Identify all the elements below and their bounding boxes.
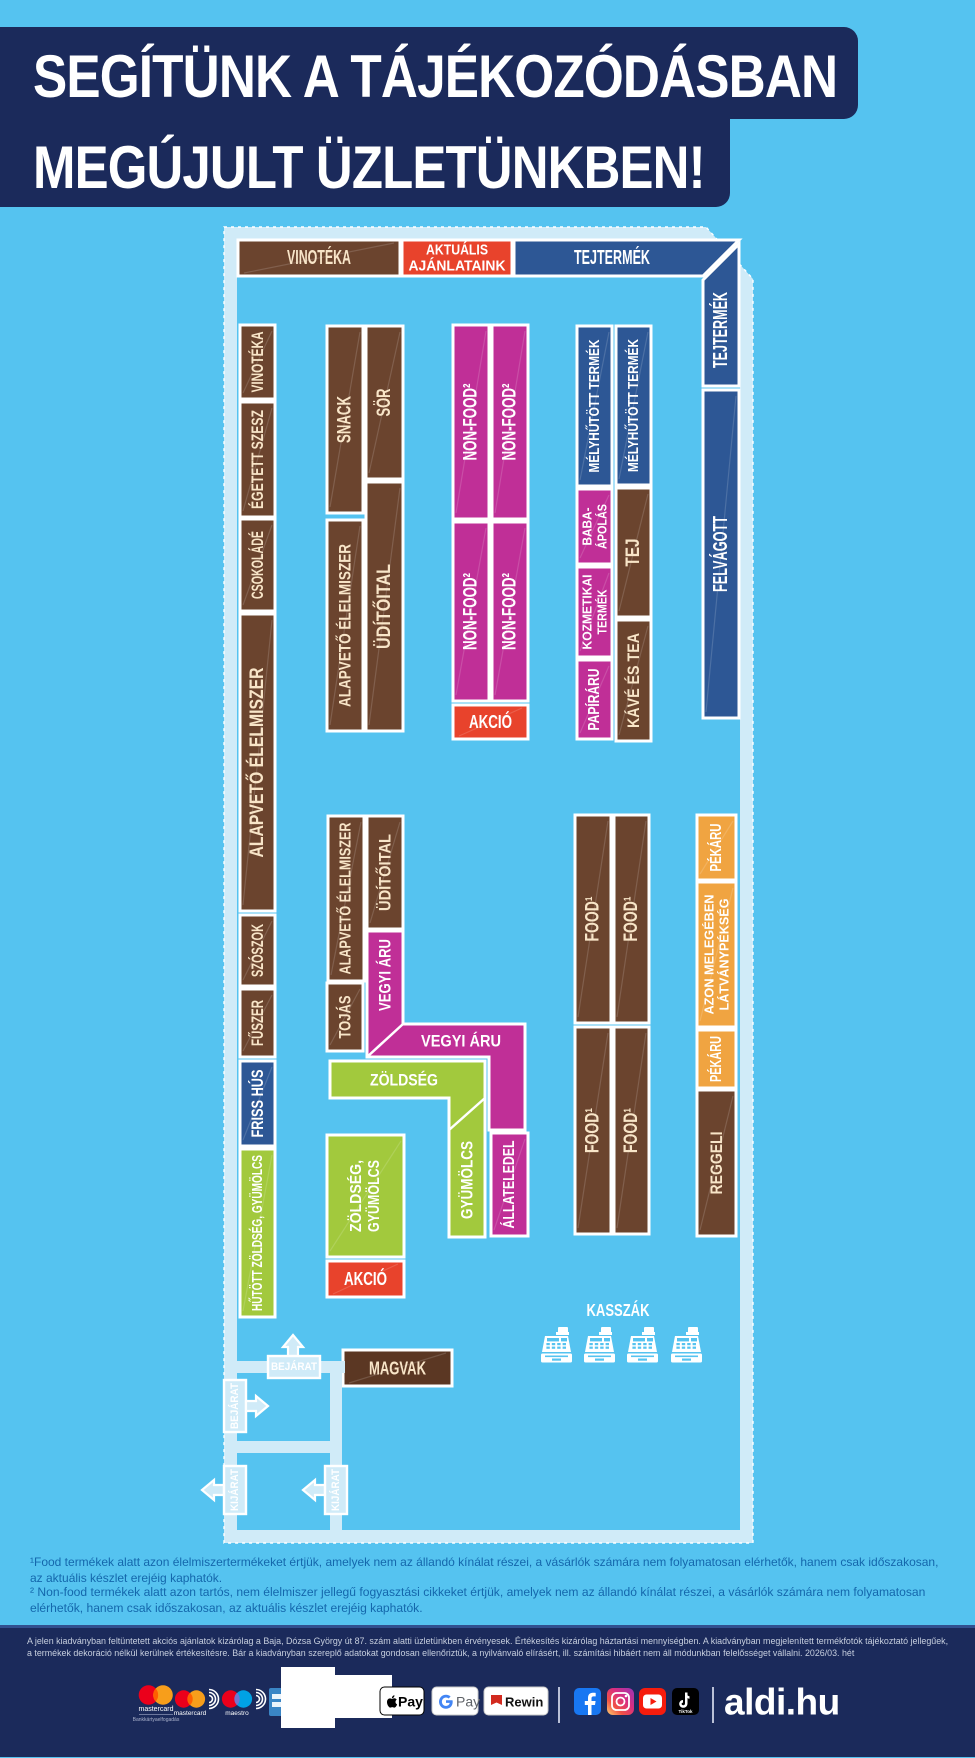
svg-text:TEJ: TEJ xyxy=(623,539,644,567)
svg-text:ALAPVETŐ ÉLELMISZER: ALAPVETŐ ÉLELMISZER xyxy=(336,822,355,974)
svg-text:KASSZÁK: KASSZÁK xyxy=(587,1299,650,1320)
svg-text:FOOD¹: FOOD¹ xyxy=(583,1108,604,1153)
svg-text:ÉGETETT SZESZ: ÉGETETT SZESZ xyxy=(248,410,267,509)
svg-text:VINOTÉKA: VINOTÉKA xyxy=(287,246,351,269)
svg-text:NON-FOOD²: NON-FOOD² xyxy=(500,384,521,461)
svg-text:NON-FOOD²: NON-FOOD² xyxy=(461,573,482,650)
svg-text:KIJÁRAT: KIJÁRAT xyxy=(329,1469,342,1511)
svg-text:FOOD¹: FOOD¹ xyxy=(621,897,642,942)
svg-text:TERMÉK: TERMÉK xyxy=(595,589,610,634)
svg-text:CSOKOLÁDÉ: CSOKOLÁDÉ xyxy=(248,531,267,599)
svg-text:MAGVAK: MAGVAK xyxy=(369,1358,426,1379)
svg-text:VINOTÉKA: VINOTÉKA xyxy=(248,332,267,393)
svg-text:aldi.hu: aldi.hu xyxy=(724,1682,840,1723)
svg-text:AKCIÓ: AKCIÓ xyxy=(344,1268,387,1289)
svg-text:SÖR: SÖR xyxy=(374,388,395,416)
svg-text:mastercard: mastercard xyxy=(174,1710,207,1717)
svg-text:FOOD¹: FOOD¹ xyxy=(583,897,604,942)
svg-text:REGGELI: REGGELI xyxy=(707,1132,726,1195)
svg-text:TikTok: TikTok xyxy=(678,1709,693,1714)
svg-text:SZÓSZOK: SZÓSZOK xyxy=(248,924,267,977)
svg-text:HŰTÖTT ZÖLDSÉG, GYÜMÖLCS: HŰTÖTT ZÖLDSÉG, GYÜMÖLCS xyxy=(248,1155,266,1311)
svg-text:Bankkártyaelfogadás: Bankkártyaelfogadás xyxy=(133,1717,180,1723)
svg-text:KOZMETIKAI: KOZMETIKAI xyxy=(580,575,595,650)
svg-text:AJÁNLATAINK: AJÁNLATAINK xyxy=(409,258,506,275)
svg-text:TOJÁS: TOJÁS xyxy=(336,996,355,1039)
svg-text:FELVÁGOTT: FELVÁGOTT xyxy=(709,516,732,592)
svg-text:ALAPVETŐ ÉLELMISZER: ALAPVETŐ ÉLELMISZER xyxy=(336,544,355,707)
svg-text:ÜDÍTŐITAL: ÜDÍTŐITAL xyxy=(376,834,395,911)
svg-text:FOOD¹: FOOD¹ xyxy=(621,1108,642,1153)
svg-text:SNACK: SNACK xyxy=(335,396,356,443)
svg-text:NON-FOOD²: NON-FOOD² xyxy=(500,573,521,650)
svg-text:Pay: Pay xyxy=(398,1694,423,1710)
svg-text:GYÜMÖLCS: GYÜMÖLCS xyxy=(364,1160,383,1232)
svg-text:mastercard: mastercard xyxy=(138,1706,173,1713)
svg-text:PÉKÁRU: PÉKÁRU xyxy=(706,824,725,872)
svg-text:KÁVÉ ÉS TEA: KÁVÉ ÉS TEA xyxy=(624,633,643,728)
svg-text:ÁLLATELEDEL: ÁLLATELEDEL xyxy=(499,1140,518,1228)
svg-text:AKCIÓ: AKCIÓ xyxy=(469,711,512,732)
svg-text:TEJTERMÉK: TEJTERMÉK xyxy=(574,246,650,269)
svg-text:BEJÁRAT: BEJÁRAT xyxy=(228,1383,241,1429)
svg-text:maestro: maestro xyxy=(225,1710,249,1717)
svg-text:MÉLYHŰTÖTT TERMÉK: MÉLYHŰTÖTT TERMÉK xyxy=(624,339,642,472)
svg-text:Rewin: Rewin xyxy=(505,1695,543,1710)
svg-text:PAPÍRÁRU: PAPÍRÁRU xyxy=(584,669,603,731)
svg-text:PÉKÁRU: PÉKÁRU xyxy=(706,1036,725,1082)
svg-text:VEGYI ÁRU: VEGYI ÁRU xyxy=(421,1032,501,1051)
svg-text:BEJÁRAT: BEJÁRAT xyxy=(271,1360,317,1373)
svg-text:BABA-: BABA- xyxy=(580,508,595,546)
svg-text:ZÖLDSÉG,: ZÖLDSÉG, xyxy=(346,1160,365,1232)
svg-text:VEGYI ÁRU: VEGYI ÁRU xyxy=(376,939,395,1011)
svg-text:TEJTERMÉK: TEJTERMÉK xyxy=(709,292,732,368)
svg-text:NON-FOOD²: NON-FOOD² xyxy=(461,384,482,461)
svg-text:KIJÁRAT: KIJÁRAT xyxy=(228,1469,241,1511)
svg-text:Pay: Pay xyxy=(456,1694,480,1710)
svg-text:FŰSZER: FŰSZER xyxy=(248,1000,267,1046)
svg-text:MÉLYHŰTÖTT TERMÉK: MÉLYHŰTÖTT TERMÉK xyxy=(585,339,603,472)
svg-text:LÁTVÁNYPÉKSÉG: LÁTVÁNYPÉKSÉG xyxy=(717,899,732,1011)
svg-text:GYÜMÖLCS: GYÜMÖLCS xyxy=(458,1141,477,1219)
svg-text:ALAPVETŐ ÉLELMISZER: ALAPVETŐ ÉLELMISZER xyxy=(246,667,268,857)
svg-text:AZON MELEGÉBEN: AZON MELEGÉBEN xyxy=(702,895,717,1015)
svg-text:FRISS HÚS: FRISS HÚS xyxy=(248,1070,267,1138)
svg-text:AKTUÁLIS: AKTUÁLIS xyxy=(426,242,488,259)
svg-text:ÁPOLÁS: ÁPOLÁS xyxy=(595,504,610,549)
svg-text:ZÖLDSÉG: ZÖLDSÉG xyxy=(370,1071,438,1090)
svg-text:ÜDÍTŐITAL: ÜDÍTŐITAL xyxy=(373,564,395,649)
